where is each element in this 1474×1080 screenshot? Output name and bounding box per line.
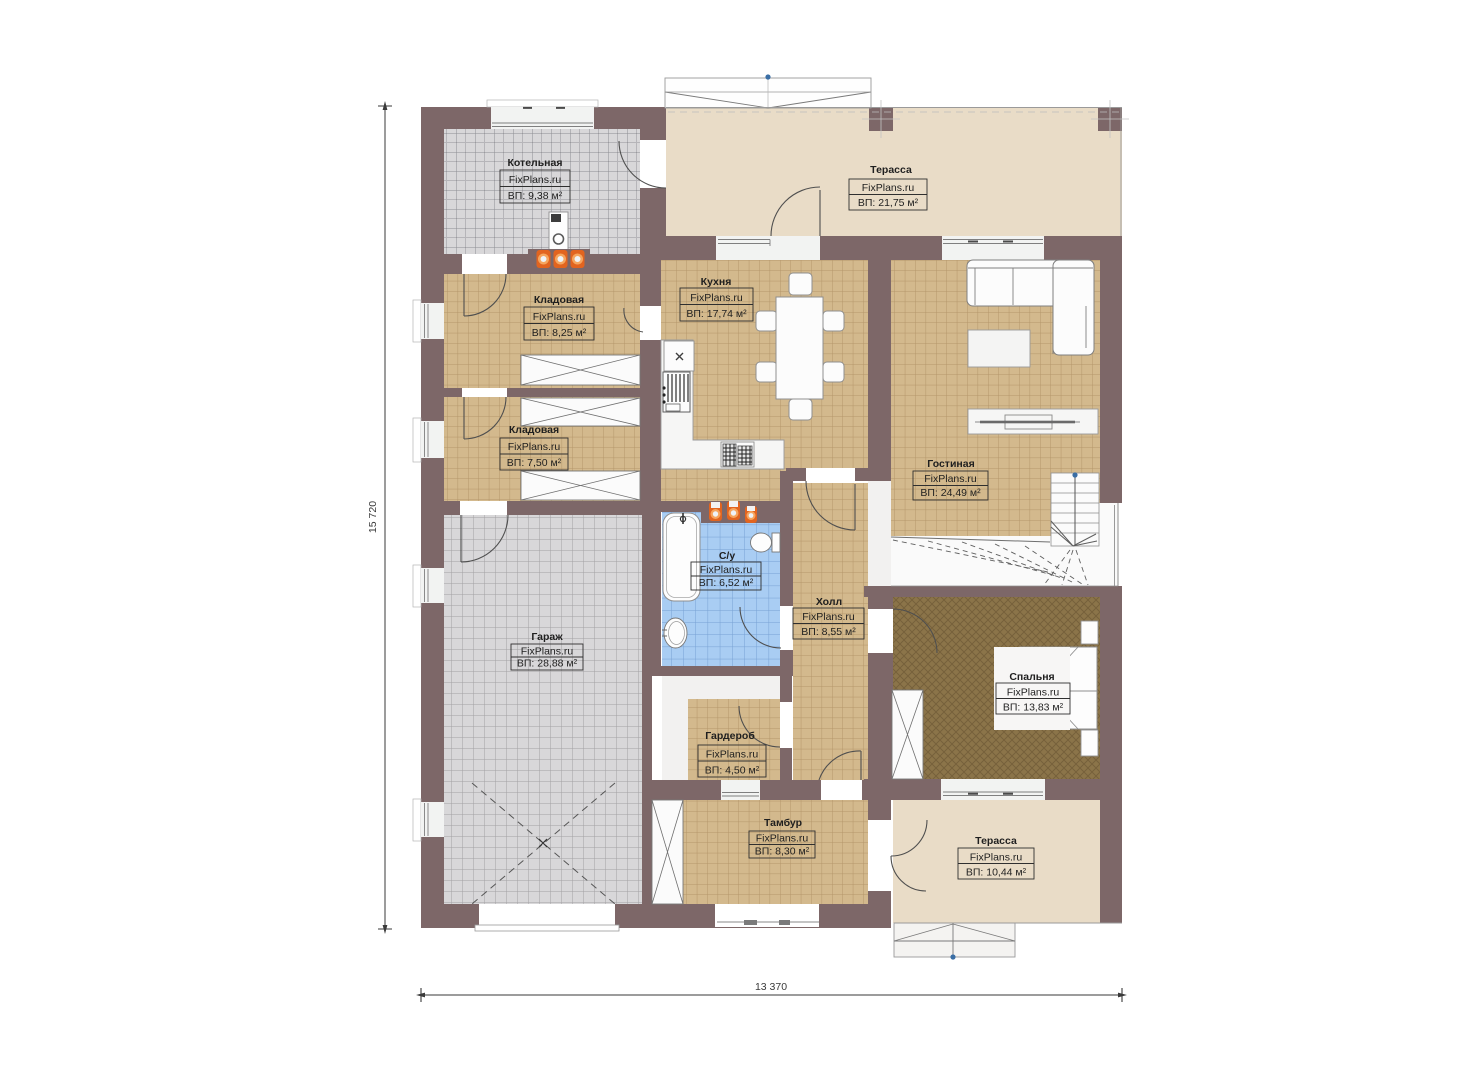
svg-text:FixPlans.ru: FixPlans.ru — [970, 852, 1023, 864]
svg-text:ВП: 10,44 м²: ВП: 10,44 м² — [966, 867, 1027, 879]
svg-text:ВП: 7,50 м²: ВП: 7,50 м² — [507, 457, 562, 469]
svg-text:ВП: 6,52 м²: ВП: 6,52 м² — [699, 577, 754, 589]
svg-text:FixPlans.ru: FixPlans.ru — [533, 311, 586, 323]
svg-text:Кухня: Кухня — [701, 276, 732, 288]
svg-text:FixPlans.ru: FixPlans.ru — [521, 646, 574, 658]
svg-text:Котельная: Котельная — [508, 157, 563, 169]
svg-text:Терасса: Терасса — [870, 164, 912, 176]
svg-text:FixPlans.ru: FixPlans.ru — [508, 441, 561, 453]
svg-text:ВП: 28,88 м²: ВП: 28,88 м² — [517, 658, 578, 670]
svg-text:ВП: 24,49 м²: ВП: 24,49 м² — [920, 487, 981, 499]
svg-text:Тамбур: Тамбур — [764, 817, 802, 829]
svg-text:FixPlans.ru: FixPlans.ru — [700, 564, 753, 576]
svg-text:FixPlans.ru: FixPlans.ru — [1007, 687, 1060, 699]
svg-text:ВП: 8,25 м²: ВП: 8,25 м² — [532, 327, 587, 339]
svg-text:13 370: 13 370 — [755, 981, 787, 993]
svg-text:Кладовая: Кладовая — [509, 424, 559, 436]
svg-text:FixPlans.ru: FixPlans.ru — [862, 182, 915, 194]
svg-text:FixPlans.ru: FixPlans.ru — [690, 292, 743, 304]
svg-text:FixPlans.ru: FixPlans.ru — [706, 749, 759, 761]
svg-text:ВП: 4,50 м²: ВП: 4,50 м² — [705, 765, 760, 777]
svg-text:Гараж: Гараж — [531, 631, 563, 643]
svg-text:Терасса: Терасса — [975, 835, 1017, 847]
svg-text:ВП: 17,74 м²: ВП: 17,74 м² — [686, 308, 747, 320]
svg-text:ВП: 9,38 м²: ВП: 9,38 м² — [508, 190, 563, 202]
svg-text:Гостиная: Гостиная — [927, 458, 974, 470]
svg-text:ВП: 8,55 м²: ВП: 8,55 м² — [801, 626, 856, 638]
svg-text:Гардероб: Гардероб — [705, 730, 755, 742]
svg-text:ВП: 21,75 м²: ВП: 21,75 м² — [858, 197, 919, 209]
svg-text:С/у: С/у — [719, 550, 736, 562]
svg-text:ВП: 13,83 м²: ВП: 13,83 м² — [1003, 702, 1064, 714]
svg-text:FixPlans.ru: FixPlans.ru — [756, 833, 809, 845]
svg-text:FixPlans.ru: FixPlans.ru — [509, 174, 562, 186]
svg-text:FixPlans.ru: FixPlans.ru — [924, 473, 977, 485]
svg-text:Кладовая: Кладовая — [534, 294, 584, 306]
svg-text:Холл: Холл — [816, 596, 842, 608]
svg-text:15 720: 15 720 — [367, 501, 379, 533]
svg-text:Спальня: Спальня — [1009, 671, 1054, 683]
svg-text:FixPlans.ru: FixPlans.ru — [802, 611, 855, 623]
svg-text:ВП: 8,30 м²: ВП: 8,30 м² — [755, 846, 810, 858]
